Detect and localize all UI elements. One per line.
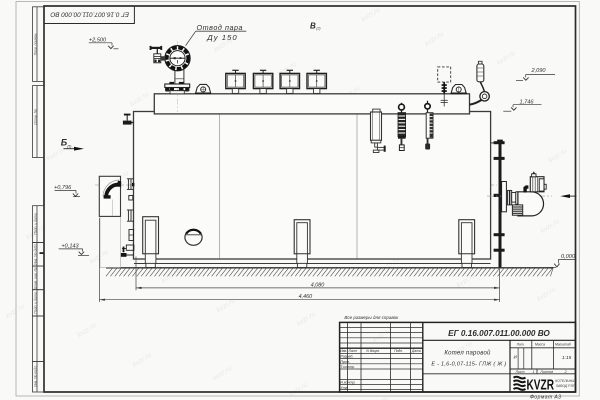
- svg-text:ЕГ 0.16.007.011.00.000 ВО: ЕГ 0.16.007.011.00.000 ВО: [50, 11, 129, 18]
- svg-text:Все размеры для справок: Все размеры для справок: [344, 315, 399, 320]
- svg-text:ЕГ 0.16.007.011.00.000 ВО: ЕГ 0.16.007.011.00.000 ВО: [448, 329, 550, 338]
- svg-text:Ду 150: Ду 150: [206, 33, 237, 42]
- svg-text:Листов: Листов: [539, 370, 553, 374]
- svg-text:4,460: 4,460: [299, 294, 313, 300]
- svg-text:Подп. и дата: Подп. и дата: [33, 292, 37, 313]
- svg-text:Т.контр.: Т.контр.: [340, 365, 355, 369]
- svg-text:КОТЕЛЬНЫЙ: КОТЕЛЬНЫЙ: [555, 379, 577, 383]
- svg-text:1:15: 1:15: [562, 355, 572, 361]
- svg-text:Изм.: Изм.: [340, 349, 347, 353]
- svg-text:Справ. No: Справ. No: [33, 109, 37, 125]
- svg-text:4,080: 4,080: [311, 282, 325, 288]
- svg-text:(2): (2): [316, 27, 320, 31]
- svg-text:Масса: Масса: [535, 343, 545, 347]
- svg-text:Пров.: Пров.: [340, 360, 349, 364]
- svg-text:KVZR: KVZR: [527, 378, 555, 394]
- svg-text:Утв.: Утв.: [340, 386, 348, 390]
- svg-text:Формат А3: Формат А3: [530, 395, 561, 400]
- svg-text:2,090: 2,090: [531, 68, 547, 74]
- svg-text:Масштаб: Масштаб: [555, 343, 571, 347]
- svg-text:Котел паровой: Котел паровой: [444, 349, 491, 356]
- svg-text:Лист: Лист: [515, 370, 525, 374]
- svg-text:Перв. примен.: Перв. примен.: [33, 33, 37, 56]
- svg-text:2: 2: [564, 370, 567, 374]
- svg-text:N докум.: N докум.: [366, 349, 379, 353]
- svg-text:Инв. No дубл.: Инв. No дубл.: [33, 243, 37, 265]
- svg-text:1: 1: [533, 370, 535, 374]
- svg-text:Отвод пара: Отвод пара: [197, 23, 244, 32]
- svg-text:Н.контр.: Н.контр.: [340, 381, 355, 385]
- svg-text:Е - 1,6-0,07-115- ГЛЖ ( Ж ): Е - 1,6-0,07-115- ГЛЖ ( Ж ): [431, 361, 506, 367]
- svg-text:Дата: Дата: [411, 349, 421, 353]
- svg-text:Лист: Лист: [348, 349, 358, 353]
- svg-text:Лит.: Лит.: [516, 343, 525, 347]
- svg-text:Подп.: Подп.: [394, 349, 403, 353]
- svg-text:Инв. No подл.: Инв. No подл.: [33, 365, 37, 387]
- svg-text:Взам. инв. No: Взам. инв. No: [33, 267, 37, 289]
- svg-text:В: В: [310, 21, 316, 30]
- svg-text:ЗАВОД РЭП: ЗАВОД РЭП: [556, 384, 576, 388]
- svg-text:Разраб.: Разраб.: [340, 355, 353, 359]
- svg-text:(5): (5): [67, 145, 71, 149]
- svg-text:Подп. и дата: Подп. и дата: [33, 213, 37, 234]
